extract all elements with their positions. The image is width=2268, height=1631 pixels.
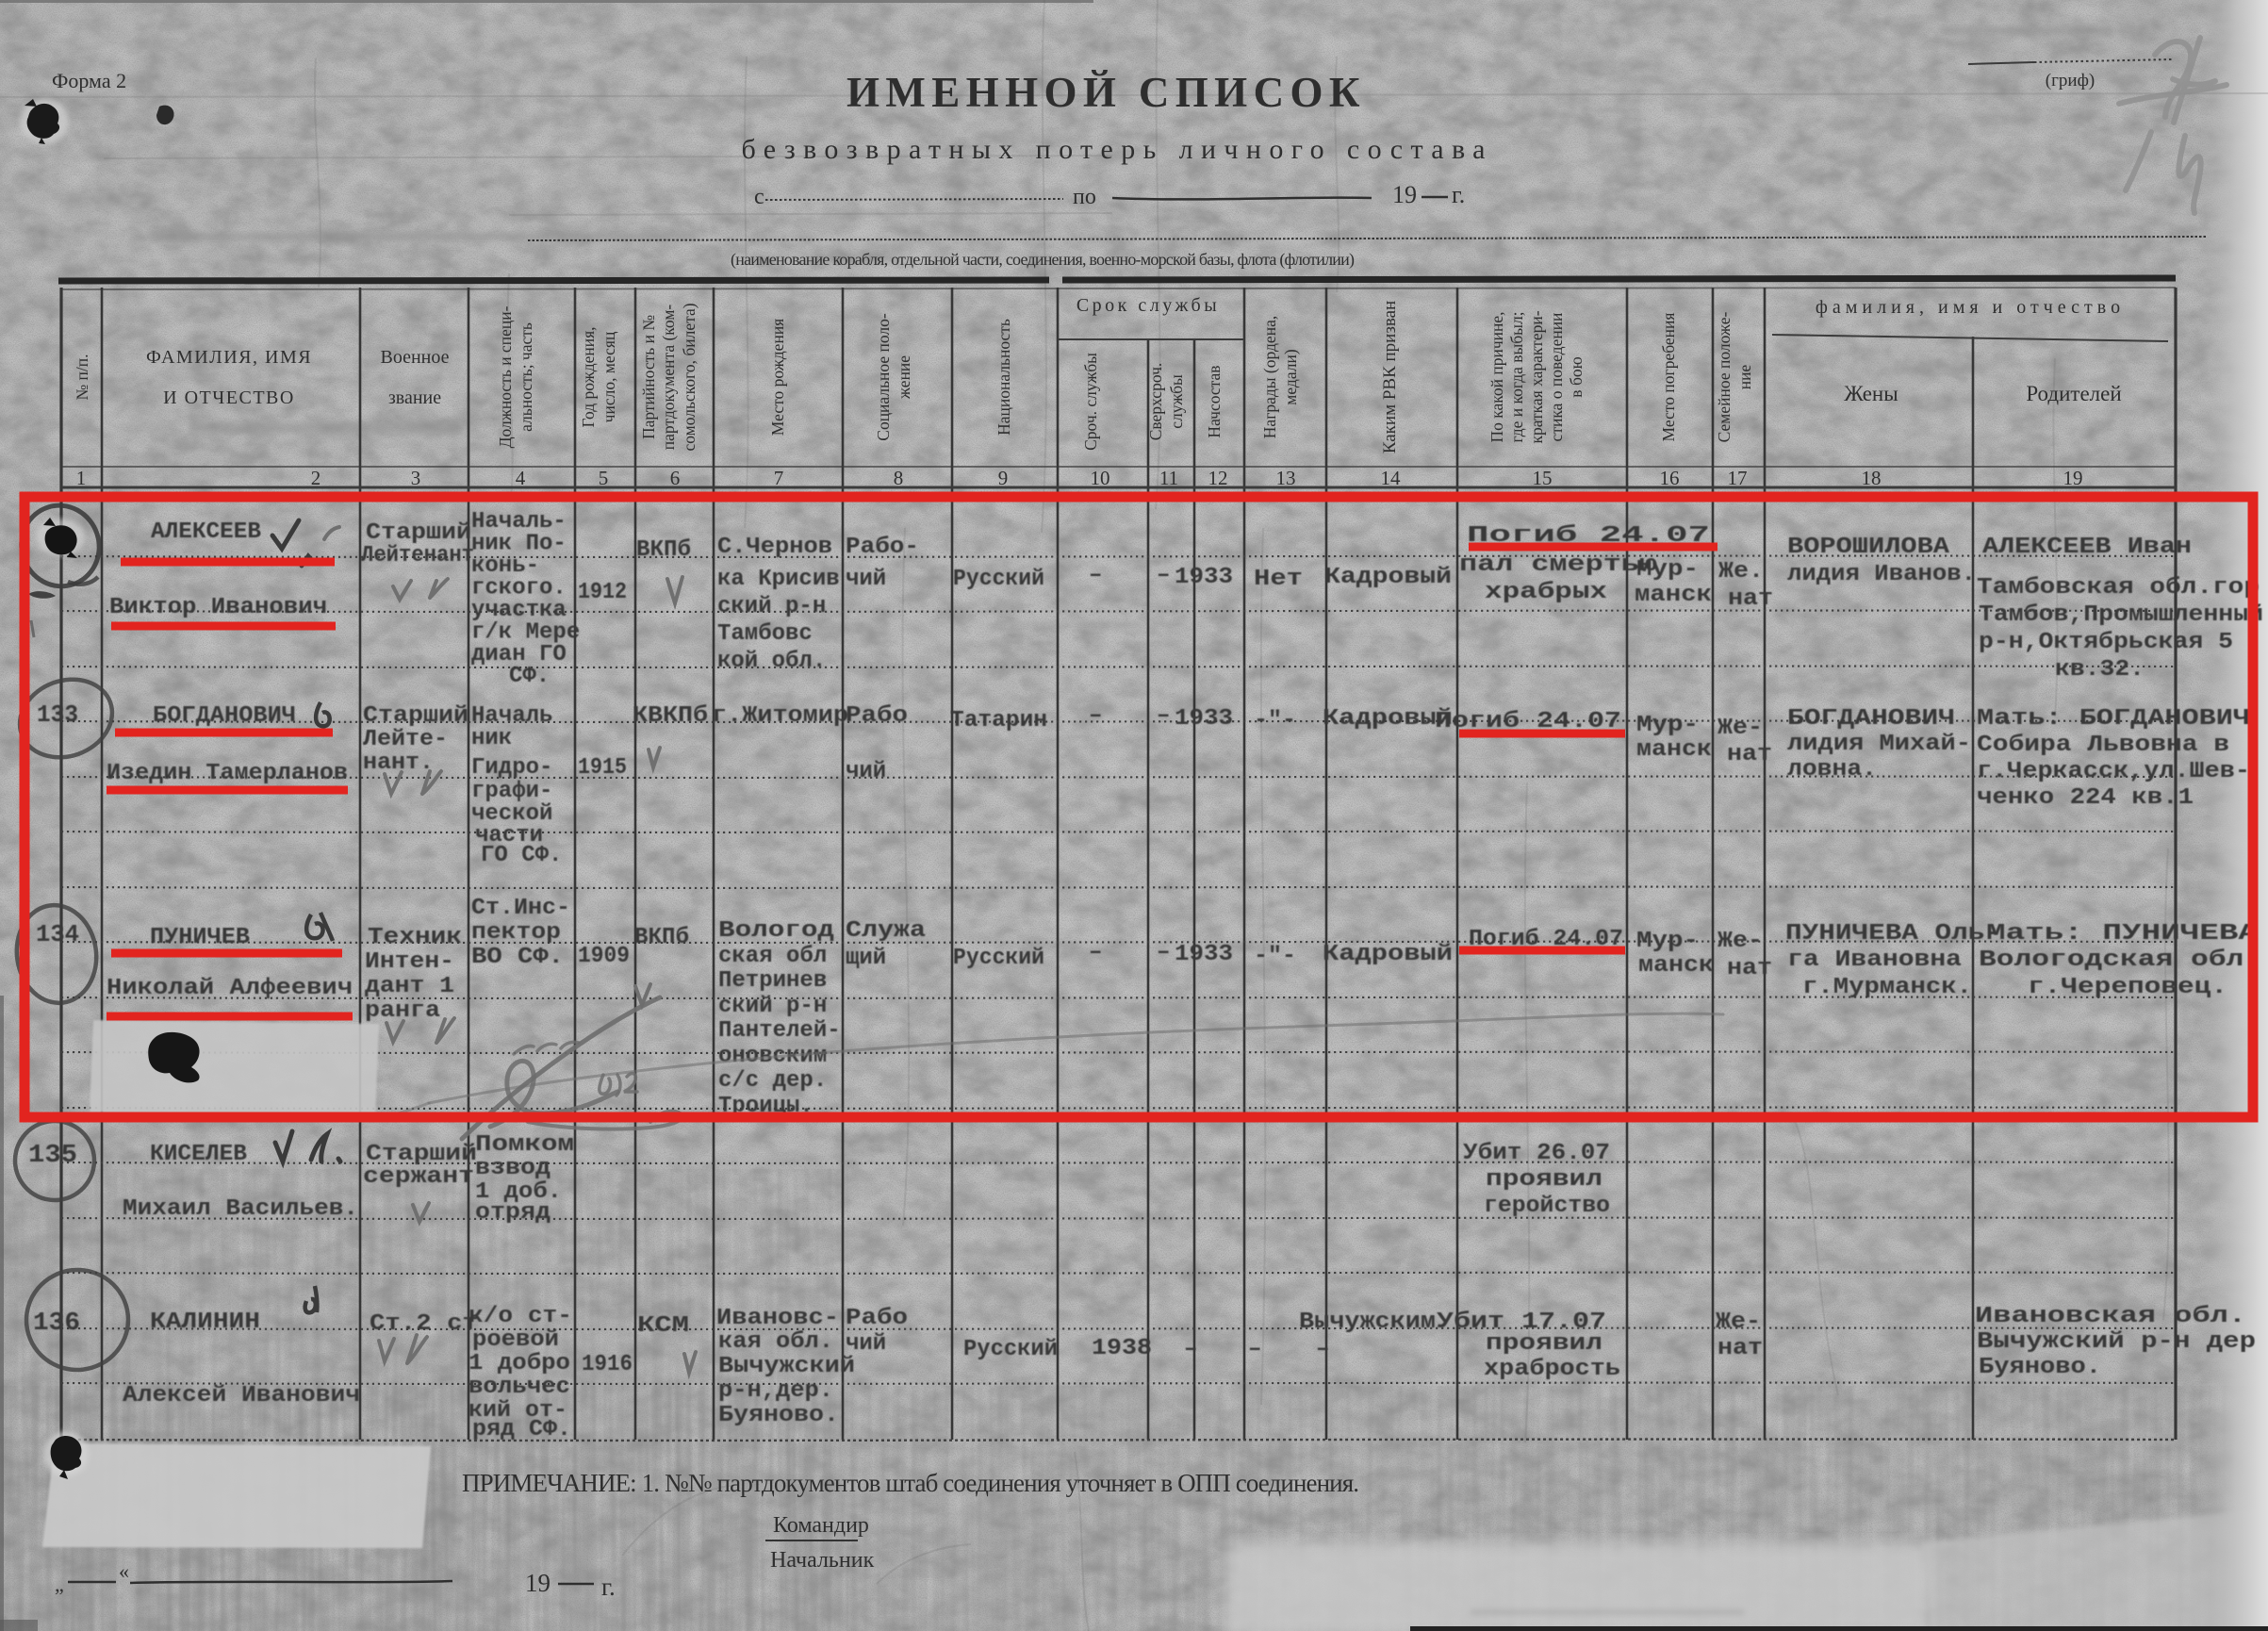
svg-text:Интен-: Интен-	[365, 949, 454, 975]
svg-text:БОГДАНОВИЧ: БОГДАНОВИЧ	[1787, 706, 1955, 732]
svg-text:ВКПб: ВКПб	[636, 537, 691, 563]
svg-text:1933: 1933	[1175, 942, 1233, 967]
svg-text:КАЛИНИН: КАЛИНИН	[150, 1310, 260, 1335]
svg-text:ка Крисив: ка Крисив	[717, 567, 840, 592]
svg-text:1938: 1938	[1092, 1336, 1152, 1361]
svg-text:проявил: проявил	[1486, 1167, 1602, 1193]
svg-text:к/о ст-: к/о ст-	[468, 1304, 572, 1329]
svg-text:Старший: Старший	[366, 520, 471, 546]
svg-text:Же-: Же-	[1717, 929, 1763, 954]
svg-text:18: 18	[1862, 467, 1882, 489]
svg-text:Началь: Началь	[471, 703, 552, 729]
svg-text:Алексей Иванович: Алексей Иванович	[123, 1383, 360, 1409]
svg-text:нат: нат	[1727, 956, 1772, 981]
svg-text:Командир: Командир	[773, 1513, 869, 1538]
svg-text:1912: 1912	[578, 580, 627, 605]
svg-text:дант 1: дант 1	[365, 974, 454, 999]
svg-text:лидия Иванов.: лидия Иванов.	[1787, 562, 1976, 587]
svg-text:Николай Алфеевич: Николай Алфеевич	[107, 976, 353, 1001]
svg-text:Семейное положе-: Семейное положе-	[1715, 311, 1734, 442]
svg-text:7: 7	[774, 467, 784, 489]
svg-text:ПУНИЧЕВА Оль-: ПУНИЧЕВА Оль-	[1785, 921, 2001, 947]
svg-text:безвозвратных потерь личного с: безвозвратных потерь личного состава	[742, 134, 1491, 165]
svg-text:БОГДАНОВИЧ: БОГДАНОВИЧ	[153, 703, 296, 729]
svg-text:Военное: Военное	[381, 347, 450, 368]
svg-text:Кадровый: Кадровый	[1324, 565, 1452, 590]
svg-text:г.Житомир: г.Житомир	[712, 703, 848, 729]
svg-text:1909: 1909	[578, 944, 630, 969]
svg-text:число, месяц: число, месяц	[600, 332, 618, 423]
svg-text:Техник: Техник	[368, 925, 462, 950]
svg-text:в бою: в бою	[1567, 356, 1586, 397]
svg-text:9: 9	[998, 467, 1009, 489]
svg-text:Форма 2: Форма 2	[52, 69, 126, 92]
svg-text:АЛЕКСЕЕВ: АЛЕКСЕЕВ	[151, 519, 261, 545]
svg-text:Жены: Жены	[1844, 382, 1898, 405]
svg-text:11: 11	[1159, 467, 1178, 489]
svg-text:17: 17	[1728, 467, 1748, 489]
svg-text:Мур-: Мур-	[1636, 713, 1699, 738]
svg-text:С.Чернов: С.Чернов	[717, 535, 832, 560]
svg-text:Русский: Русский	[963, 1337, 1058, 1362]
svg-text:Родителей: Родителей	[2026, 382, 2121, 405]
svg-text:–: –	[1157, 940, 1170, 965]
svg-text:где и когда выбыл;: где и когда выбыл;	[1507, 311, 1526, 442]
svg-text:краткая характери-: краткая характери-	[1527, 310, 1546, 443]
svg-text:КВКПб: КВКПб	[633, 703, 708, 729]
svg-text:сомольского, билета): сомольского, билета)	[680, 303, 698, 451]
svg-text:вольчес: вольчес	[468, 1375, 570, 1400]
svg-text:геройство: геройство	[1484, 1194, 1610, 1219]
svg-text:кая обл.: кая обл.	[718, 1329, 833, 1355]
svg-text:Петринев: Петринев	[718, 968, 827, 994]
svg-text:КСМ: КСМ	[637, 1313, 689, 1339]
svg-text:„: „	[55, 1573, 64, 1596]
svg-text:фамилия, имя и отчество: фамилия, имя и отчество	[1816, 297, 2125, 318]
svg-text:кой обл.: кой обл.	[717, 649, 826, 674]
svg-text:–: –	[1089, 563, 1102, 588]
svg-text:сержант: сержант	[363, 1164, 474, 1190]
svg-text:службы: службы	[1167, 374, 1186, 429]
svg-text:4: 4	[516, 467, 526, 489]
svg-text:ряд СФ.: ряд СФ.	[472, 1417, 571, 1442]
svg-text:19: 19	[525, 1569, 551, 1597]
svg-text:Партийность и №: Партийность и №	[639, 315, 658, 439]
svg-text:по: по	[1073, 185, 1096, 209]
svg-text:ник: ник	[471, 726, 512, 751]
svg-text:пал смертью: пал смертью	[1459, 552, 1657, 578]
svg-text:5: 5	[599, 467, 609, 489]
svg-text:ПУНИЧЕВ: ПУНИЧЕВ	[150, 925, 250, 950]
svg-text:№ п/п.: № п/п.	[73, 354, 91, 400]
svg-text:Старший: Старший	[363, 703, 468, 729]
svg-text:Собира Львовна в: Собира Львовна в	[1977, 733, 2229, 758]
svg-text:ФАМИЛИЯ, ИМЯ: ФАМИЛИЯ, ИМЯ	[146, 347, 312, 368]
svg-text:6: 6	[670, 467, 681, 489]
svg-text:2: 2	[311, 467, 321, 489]
svg-text:с/с дер.: с/с дер.	[718, 1068, 827, 1094]
svg-text:Русский: Русский	[953, 567, 1044, 592]
svg-text:альность; часть: альность; часть	[517, 322, 535, 432]
svg-text:г.Черкасск,ул.Шев-: г.Черкасск,ул.Шев-	[1977, 759, 2250, 784]
svg-text:-"-: -"-	[1254, 944, 1296, 969]
svg-text:Ивановс-: Ивановс-	[716, 1306, 839, 1331]
svg-text:Место погребения: Место погребения	[1659, 313, 1678, 442]
svg-text:ловна.: ловна.	[1787, 757, 1877, 783]
svg-text:1915: 1915	[578, 755, 627, 781]
svg-text:Же-: Же-	[1717, 716, 1763, 741]
svg-text:–: –	[1157, 703, 1170, 729]
svg-text:АЛЕКСЕЕВ Иван: АЛЕКСЕЕВ Иван	[1982, 535, 2192, 560]
svg-text:13: 13	[1276, 467, 1296, 489]
svg-text:(наименование корабля, отдельн: (наименование корабля, отдельной части, …	[731, 250, 1355, 270]
svg-text:нат: нат	[1728, 586, 1773, 612]
svg-text:КИСЕЛЕВ: КИСЕЛЕВ	[150, 1142, 247, 1167]
svg-text:1: 1	[76, 467, 87, 489]
svg-text:взвод: взвод	[475, 1156, 551, 1181]
svg-text:Помком: Помком	[475, 1132, 574, 1158]
svg-text:Год рождения,: Год рождения,	[579, 326, 598, 427]
svg-text:133: 133	[37, 700, 78, 729]
svg-text:храбрых: храбрых	[1485, 580, 1607, 605]
svg-text:чий: чий	[846, 1331, 886, 1357]
svg-text:Вычужским: Вычужским	[1299, 1310, 1436, 1335]
svg-text:Же-: Же-	[1716, 1310, 1761, 1335]
svg-text:–: –	[1184, 1337, 1197, 1362]
svg-text:–: –	[1089, 703, 1102, 729]
svg-text:г.: г.	[601, 1573, 616, 1601]
svg-text:партдокумента (ком-: партдокумента (ком-	[659, 305, 678, 451]
svg-text:нат: нат	[1727, 742, 1772, 767]
svg-text:Же.: Же.	[1718, 559, 1764, 585]
svg-text:Лейтенант: Лейтенант	[361, 543, 474, 568]
svg-text:СФ.: СФ.	[509, 664, 550, 689]
svg-text:Тамбовс: Тамбовс	[717, 621, 813, 647]
svg-text:Рабо: Рабо	[846, 1306, 908, 1331]
svg-text:Награды (ордена,: Награды (ордена,	[1260, 316, 1279, 438]
svg-text:звание: звание	[388, 387, 441, 408]
svg-text:медали): медали)	[1281, 349, 1300, 405]
svg-text:И ОТЧЕСТВО: И ОТЧЕСТВО	[163, 387, 295, 408]
svg-text:нат: нат	[1717, 1336, 1763, 1361]
svg-text:Место рождения: Место рождения	[768, 319, 787, 436]
svg-text:136: 136	[33, 1310, 80, 1338]
svg-text:г.Мурманск.: г.Мурманск.	[1802, 975, 1972, 1000]
svg-text:Михаил Васильев.: Михаил Васильев.	[123, 1196, 358, 1222]
svg-text:3: 3	[411, 467, 421, 489]
svg-text:стика о поведении: стика о поведении	[1547, 313, 1566, 442]
svg-text:г.: г.	[1452, 181, 1465, 208]
svg-text:отряд: отряд	[475, 1200, 551, 1226]
svg-text:Тамбовская обл.гор: Тамбовская обл.гор	[1977, 575, 2260, 601]
svg-text:12: 12	[1208, 467, 1228, 489]
svg-text:ВКПб: ВКПб	[634, 925, 689, 950]
svg-text:Срок службы: Срок службы	[1076, 295, 1220, 316]
svg-text:Лейте-: Лейте-	[363, 727, 448, 752]
svg-text:ский р-н: ский р-н	[717, 594, 826, 619]
svg-text:14: 14	[1381, 467, 1402, 489]
svg-text:чий: чий	[846, 759, 886, 784]
svg-text:ГО СФ.: ГО СФ.	[481, 843, 562, 868]
svg-text:–: –	[1157, 563, 1170, 588]
svg-text:Мур-: Мур-	[1636, 557, 1699, 583]
svg-text:храбрость: храбрость	[1484, 1357, 1620, 1382]
svg-text:1 добро: 1 добро	[468, 1351, 570, 1376]
svg-text:р-н,дер.: р-н,дер.	[718, 1378, 833, 1404]
svg-text:Кадровый: Кадровый	[1323, 942, 1453, 967]
svg-text:Вологод: Вологод	[718, 918, 834, 944]
svg-text:Рабо-: Рабо-	[846, 535, 919, 560]
svg-text:(гриф): (гриф)	[2046, 71, 2095, 91]
svg-text:Рабо: Рабо	[846, 703, 908, 729]
svg-text:Изедин Тамерланов: Изедин Тамерланов	[107, 761, 348, 786]
svg-text:Тамбов,Промышленный: Тамбов,Промышленный	[1979, 602, 2263, 628]
svg-text:жение: жение	[895, 355, 913, 400]
svg-text:Нет: Нет	[1254, 567, 1303, 592]
svg-text:По какой причине,: По какой причине,	[1487, 311, 1506, 442]
svg-text:19: 19	[2063, 467, 2083, 489]
svg-text:пектор: пектор	[471, 920, 561, 946]
svg-text:Начальник: Начальник	[770, 1548, 875, 1573]
svg-text:Каким РВК призван: Каким РВК призван	[1380, 301, 1400, 453]
svg-text:ВОРОШИЛОВА: ВОРОШИЛОВА	[1787, 535, 1950, 560]
svg-text:кв.32.: кв.32.	[2055, 657, 2145, 683]
svg-text:манск: манск	[1636, 737, 1712, 763]
svg-text:Пантелей-: Пантелей-	[718, 1018, 841, 1044]
svg-text:Вычужский р-н дер: Вычужский р-н дер	[1977, 1329, 2256, 1355]
svg-text:чий: чий	[846, 567, 886, 592]
svg-text:Национальность: Национальность	[994, 319, 1013, 436]
svg-text:щий: щий	[846, 946, 886, 971]
svg-text:–: –	[1316, 1337, 1329, 1362]
svg-text:ВО СФ.: ВО СФ.	[471, 945, 564, 970]
svg-text:га Ивановна: га Ивановна	[1787, 947, 1962, 973]
svg-text:нант.: нант.	[363, 750, 434, 776]
svg-text:Служа: Служа	[846, 918, 926, 944]
svg-text:Начсостав: Начсостав	[1205, 365, 1224, 437]
svg-text:манск: манск	[1635, 583, 1712, 608]
svg-text:134: 134	[36, 920, 79, 948]
svg-text:10: 10	[1091, 467, 1110, 489]
svg-text:графи-: графи-	[471, 779, 552, 804]
svg-text:Мур-: Мур-	[1636, 929, 1699, 954]
svg-text:Буяново.: Буяново.	[1979, 1355, 2101, 1380]
svg-text:Ст.2 ст: Ст.2 ст	[370, 1311, 478, 1337]
svg-text:ИМЕННОЙ СПИСОК: ИМЕННОЙ СПИСОК	[846, 69, 1367, 116]
svg-text:Гидро-: Гидро-	[471, 755, 552, 781]
svg-text:Сверхсроч.: Сверхсроч.	[1146, 363, 1165, 441]
svg-text:роевой: роевой	[472, 1327, 559, 1353]
svg-text:Буяново.: Буяново.	[718, 1403, 839, 1428]
svg-text:манск: манск	[1638, 953, 1714, 979]
svg-text:ПРИМЕЧАНИЕ: 1. №№ партдокумент: ПРИМЕЧАНИЕ: 1. №№ партдокументов штаб со…	[462, 1469, 1359, 1497]
svg-text:лидия Михай-: лидия Михай-	[1787, 732, 1971, 757]
svg-text:Мать: БОГДАНОВИЧ: Мать: БОГДАНОВИЧ	[1977, 706, 2250, 732]
svg-text:1933: 1933	[1175, 706, 1233, 732]
svg-text:Татарин: Татарин	[950, 708, 1047, 733]
svg-text:16: 16	[1660, 467, 1680, 489]
svg-text:135: 135	[28, 1142, 77, 1170]
svg-text:1933: 1933	[1175, 565, 1233, 590]
svg-text:Виктор Иванович: Виктор Иванович	[109, 595, 327, 620]
svg-text:1916: 1916	[582, 1352, 633, 1377]
svg-text:Старший: Старший	[366, 1142, 477, 1167]
svg-text:Должность и специ-: Должность и специ-	[496, 305, 515, 448]
svg-text:ченко 224 кв.1: ченко 224 кв.1	[1977, 785, 2194, 811]
svg-text:Вычужский: Вычужский	[718, 1354, 855, 1379]
svg-text:Ивановская обл.: Ивановская обл.	[1975, 1304, 2246, 1329]
svg-text:ние: ние	[1735, 365, 1754, 390]
svg-text:Мать: ПУНИЧЕВА: Мать: ПУНИЧЕВА	[1986, 921, 2259, 947]
svg-text:Вологодская обл.: Вологодская обл.	[1979, 947, 2261, 973]
svg-text:-"-: -"-	[1254, 708, 1296, 733]
svg-text:–: –	[1248, 1337, 1261, 1362]
svg-text:Социальное поло-: Социальное поло-	[874, 313, 893, 441]
svg-text:проявил: проявил	[1486, 1331, 1602, 1357]
svg-text:8: 8	[894, 467, 904, 489]
svg-text:р-н,Октябрьская 5: р-н,Октябрьская 5	[1979, 630, 2233, 655]
svg-text:ская обл: ская обл	[718, 944, 827, 969]
svg-text:«: «	[119, 1559, 129, 1583]
svg-text:–: –	[1089, 940, 1102, 965]
svg-text:ский р-н: ский р-н	[718, 994, 827, 1019]
svg-text:Сроч. службы: Сроч. службы	[1081, 353, 1100, 451]
svg-text:19: 19	[1392, 181, 1417, 208]
svg-text:Русский: Русский	[953, 946, 1044, 971]
svg-text:15: 15	[1533, 467, 1553, 489]
svg-text:Кадровый: Кадровый	[1323, 706, 1453, 732]
svg-text:с: с	[754, 185, 764, 209]
svg-text:Убит 26.07: Убит 26.07	[1463, 1141, 1610, 1166]
svg-text:г.Череповец.: г.Череповец.	[2028, 975, 2227, 1000]
svg-text:Ст.Инс-: Ст.Инс-	[471, 896, 570, 921]
